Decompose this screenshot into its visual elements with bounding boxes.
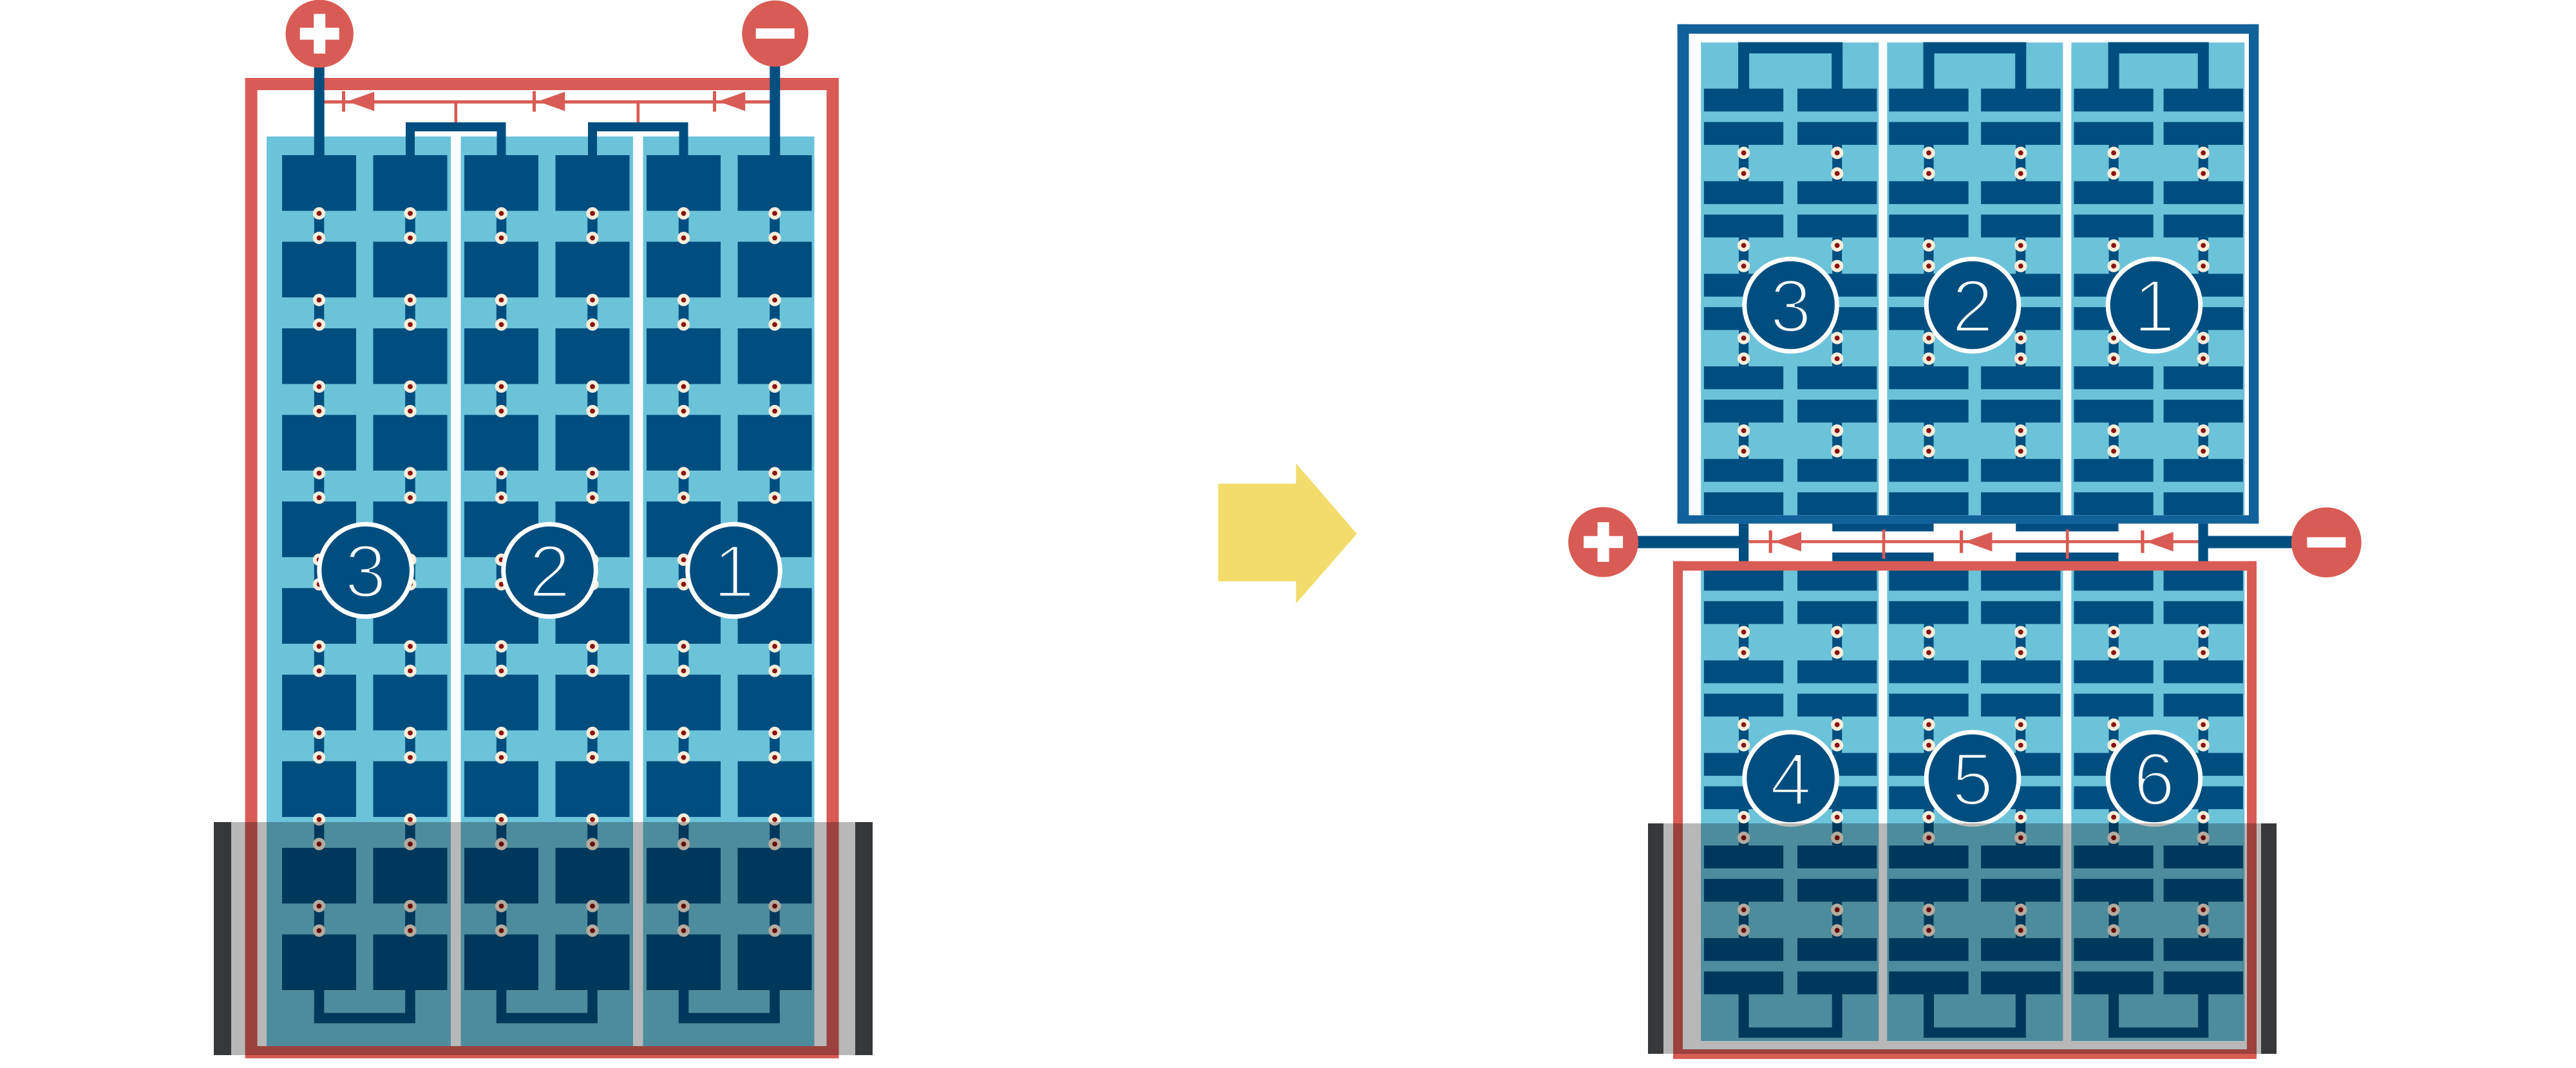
svg-text:1: 1 [2134,265,2175,348]
svg-text:6: 6 [2134,738,2175,821]
svg-text:1: 1 [713,530,755,614]
svg-text:3: 3 [345,530,386,614]
svg-text:3: 3 [1770,265,1812,348]
svg-text:4: 4 [1770,738,1812,821]
svg-text:5: 5 [1952,738,1994,821]
svg-text:2: 2 [529,530,571,614]
svg-text:2: 2 [1952,265,1994,348]
